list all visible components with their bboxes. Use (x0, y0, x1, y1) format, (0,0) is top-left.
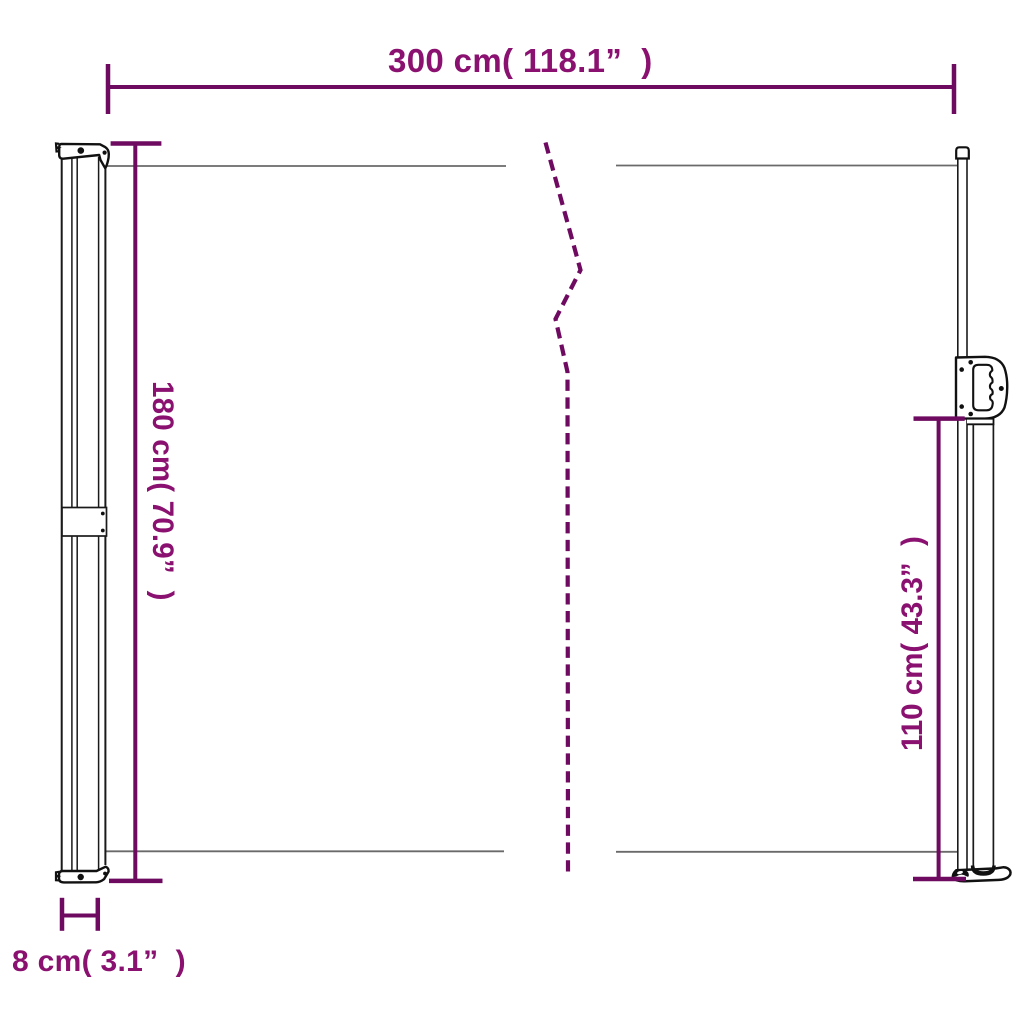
svg-text:300 cm( 118.1” ): 300 cm( 118.1” ) (388, 42, 653, 79)
svg-text:180 cm( 70.9” ): 180 cm( 70.9” ) (146, 381, 179, 601)
svg-text:110 cm( 43.3” ): 110 cm( 43.3” ) (896, 536, 929, 751)
svg-text:8 cm( 3.1” ): 8 cm( 3.1” ) (12, 945, 186, 978)
